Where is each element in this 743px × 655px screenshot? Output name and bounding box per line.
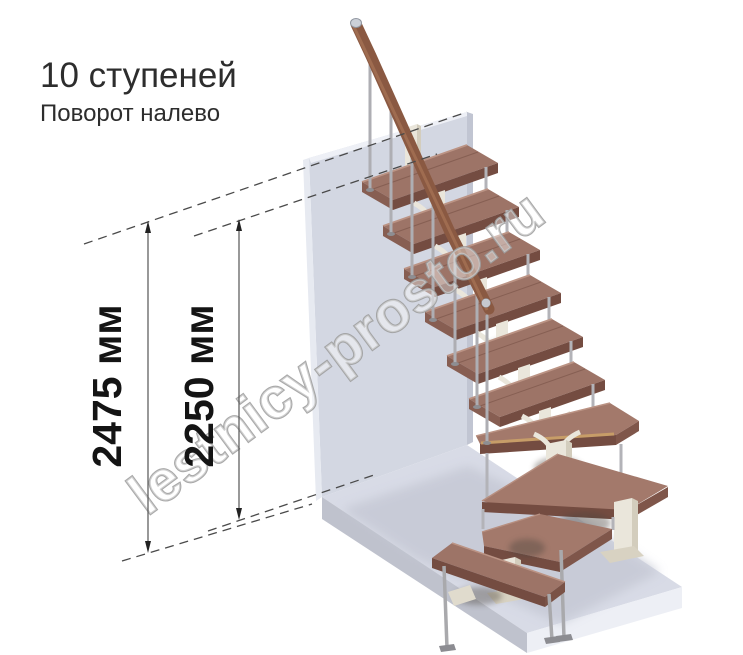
dimension-label-flight-height: 2250 мм <box>176 304 222 467</box>
arrowhead-down <box>145 541 151 553</box>
arrowhead-up <box>236 219 242 231</box>
handrail-top-cap <box>351 19 362 28</box>
diagram-page: 10 ступеней Поворот налево <box>0 0 743 655</box>
dimension-label-total-height: 2475 мм <box>84 304 130 467</box>
staircase-diagram: lestnicy-prosto.ru 2475 мм 2250 мм <box>0 0 743 655</box>
arrowhead-down <box>236 508 242 520</box>
spine-shadow <box>509 539 545 557</box>
handrail-sleeve <box>482 299 491 308</box>
leg-foot <box>439 644 456 652</box>
step-tread-3-winder <box>482 454 668 520</box>
